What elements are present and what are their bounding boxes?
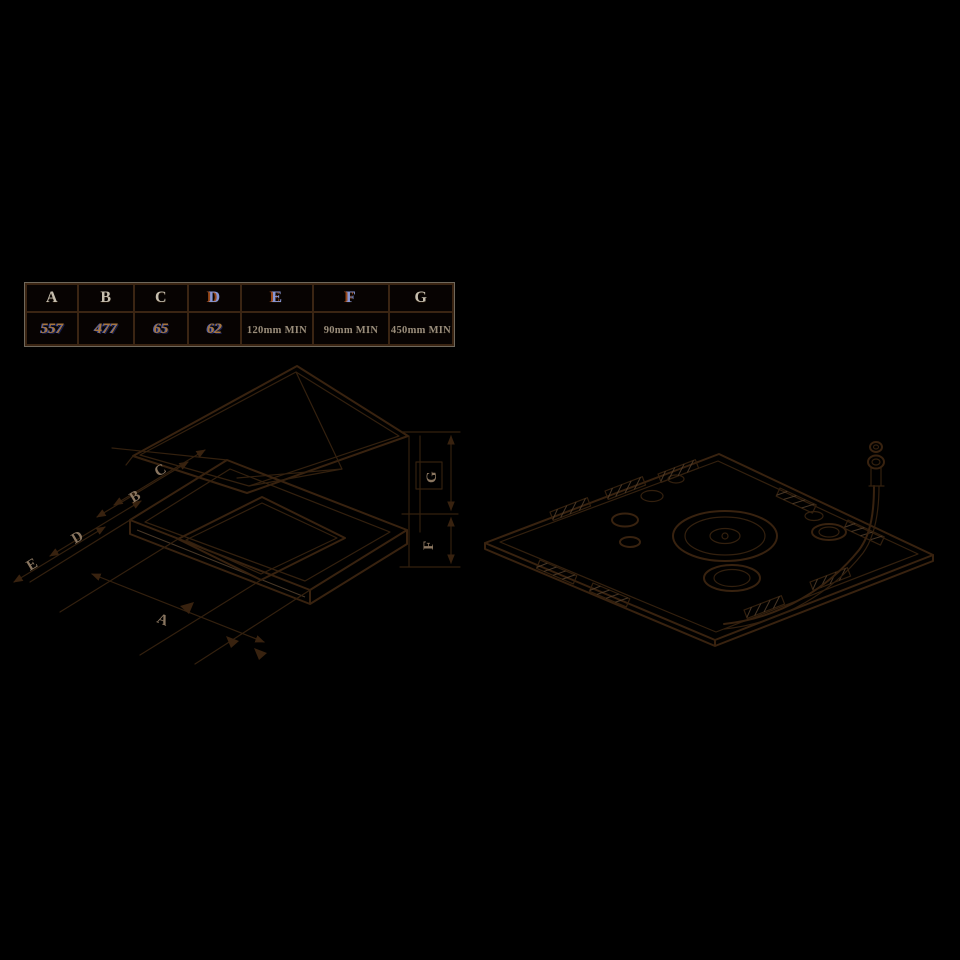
- col-c-header: C: [155, 289, 167, 306]
- col-d-header: D: [208, 289, 220, 306]
- hob-body: [130, 460, 407, 604]
- installation-drawing-page: A B C D E F G 557 477 65 62 120mm MIN 90…: [0, 0, 960, 960]
- spec-table-header-row: A B C D E F G: [26, 284, 453, 312]
- dimension-label-e: E: [24, 556, 41, 575]
- dimension-label-a: A: [155, 611, 171, 630]
- dimension-spec-table: A B C D E F G 557 477 65 62 120mm MIN 90…: [25, 283, 454, 346]
- col-c-value: 65: [154, 321, 169, 337]
- dimension-label-d: D: [69, 528, 87, 547]
- hob-underside-diagram: [462, 428, 957, 688]
- label-a-arrowhead: [180, 602, 194, 614]
- dimension-label-c: C: [152, 461, 170, 480]
- col-f-value: 90mm MIN: [324, 325, 379, 336]
- gas-inlet-fitting: [868, 442, 884, 486]
- dimension-extension-lines: [30, 448, 310, 664]
- height-dimension-bracket: G F: [400, 432, 460, 567]
- col-d-value: 62: [207, 321, 222, 337]
- col-b-value: 477: [95, 321, 118, 337]
- dimension-label-g: G: [424, 471, 440, 483]
- base-plate: [485, 454, 933, 646]
- spec-table-value-row: 557 477 65 62 120mm MIN 90mm MIN 450mm M…: [26, 312, 453, 345]
- cutout-installation-diagram: A B C D E G F: [0, 352, 480, 682]
- col-a-value: 557: [41, 321, 64, 337]
- bottom-arrowhead: [254, 648, 267, 660]
- col-e-header: E: [271, 289, 282, 306]
- col-g-value: 450mm MIN: [391, 325, 451, 336]
- bottom-arrowhead: [226, 636, 239, 648]
- col-e-value: 120mm MIN: [247, 325, 307, 336]
- dimension-lines: [14, 450, 267, 660]
- col-f-header: F: [346, 289, 356, 306]
- col-g-header: G: [415, 289, 428, 306]
- burner-cup-large: [673, 511, 777, 561]
- burner-cup-left: [612, 514, 638, 527]
- dimension-label-f: F: [421, 541, 437, 550]
- col-b-header: B: [100, 289, 111, 306]
- cutout-opening: [178, 497, 345, 580]
- burner-cups: [612, 475, 846, 591]
- col-a-header: A: [46, 289, 58, 306]
